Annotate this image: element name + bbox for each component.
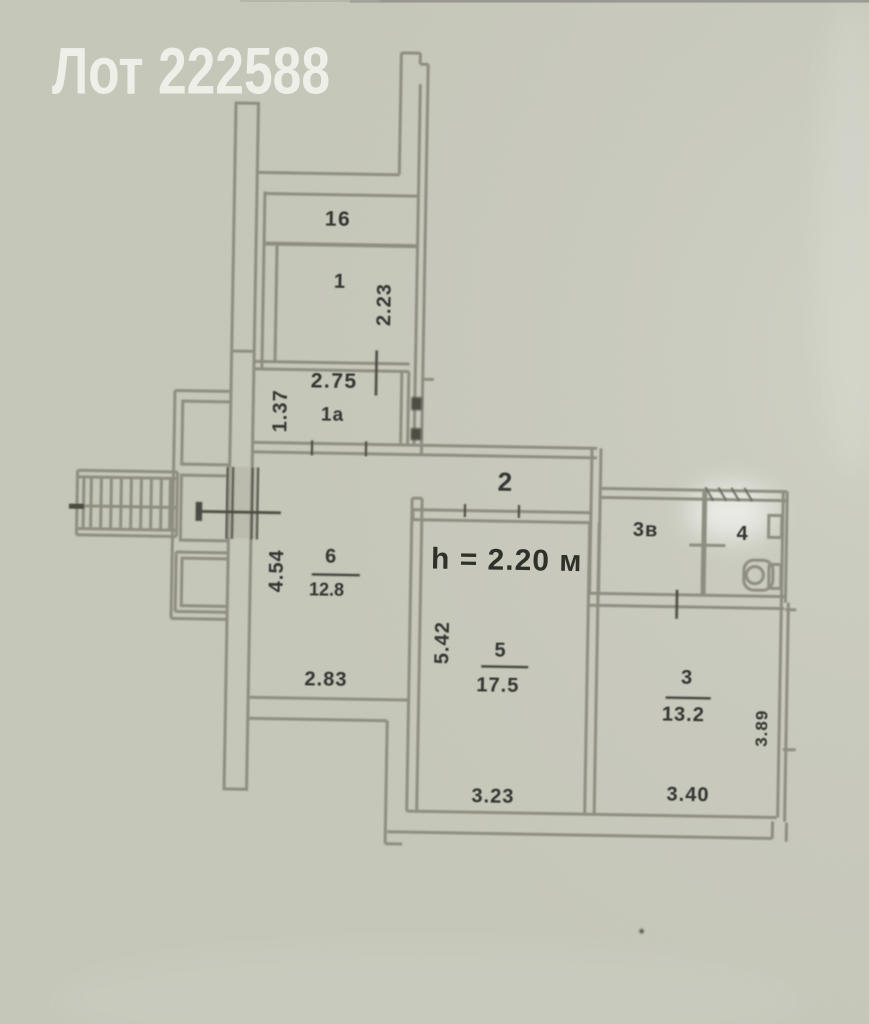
svg-text:4: 4: [736, 523, 749, 545]
svg-text:3в: 3в: [633, 519, 659, 541]
svg-text:4.54: 4.54: [265, 549, 288, 592]
svg-text:16: 16: [325, 208, 352, 231]
svg-text:1.37: 1.37: [269, 389, 292, 432]
svg-text:3.23: 3.23: [471, 785, 514, 808]
svg-text:3.40: 3.40: [666, 784, 709, 807]
svg-text:2.23: 2.23: [373, 283, 396, 326]
svg-text:5.42: 5.42: [431, 621, 454, 664]
svg-text:6: 6: [325, 546, 338, 568]
svg-text:2.83: 2.83: [304, 668, 347, 691]
svg-text:1а: 1а: [321, 405, 345, 426]
svg-text:13.2: 13.2: [662, 704, 705, 727]
svg-text:3: 3: [681, 667, 694, 689]
svg-text:3.89: 3.89: [752, 710, 772, 747]
svg-text:1: 1: [334, 271, 347, 293]
svg-text:Лот 222588: Лот 222588: [52, 34, 330, 108]
svg-text:2: 2: [497, 467, 513, 497]
svg-text:12.8: 12.8: [309, 579, 344, 600]
svg-text:h = 2.20 м: h = 2.20 м: [431, 542, 583, 578]
svg-text:17.5: 17.5: [476, 674, 519, 697]
svg-text:2.75: 2.75: [311, 369, 358, 393]
svg-text:5: 5: [494, 640, 507, 662]
